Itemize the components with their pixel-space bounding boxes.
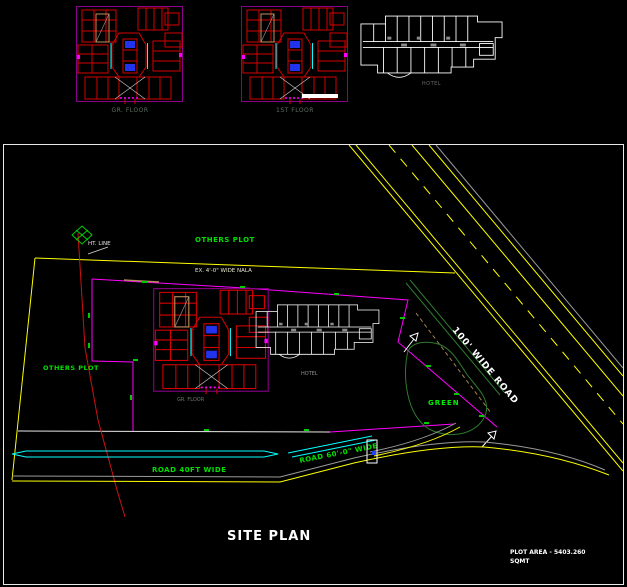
plot-area-line2: SQMT <box>510 558 530 565</box>
flow-arrow-icon <box>404 333 418 352</box>
ht-line-label: HT. LINE <box>88 241 111 247</box>
ht-line-leader <box>88 247 108 254</box>
ht-line <box>78 233 125 517</box>
tower-building-footprint <box>154 289 268 394</box>
first-floor-plan-label: 1ST FLOOR <box>240 107 350 114</box>
entry-arrow-icon <box>482 431 496 447</box>
scale-bar <box>302 94 338 98</box>
tower-footprint-label: GR. FLOOR <box>177 397 205 403</box>
plot-area-line1: PLOT AREA - 5403.260 <box>510 549 585 556</box>
hotel-building-footprint <box>256 305 379 358</box>
diagonal-road <box>349 145 623 471</box>
ground-floor-plan-drawing <box>75 5 185 105</box>
first-floor-plan-drawing <box>240 5 350 105</box>
others-plot-top-label: OTHERS PLOT <box>195 236 255 244</box>
road-bottom-label: ROAD 40FT WIDE <box>152 466 226 474</box>
ground-floor-plan-label: GR. FLOOR <box>75 107 185 114</box>
cad-canvas: GR. FLOOR 1ST FLOOR HOTEL 100' WIDE ROAD <box>0 0 627 587</box>
gate-marker <box>372 451 376 455</box>
hotel-footprint-label: HOTEL <box>301 371 318 377</box>
plot-boundary <box>18 279 497 432</box>
road-diagonal-label: 100' WIDE ROAD <box>450 326 520 407</box>
hotel-plan-drawing <box>358 8 505 82</box>
site-plan-frame: 100' WIDE ROAD <box>3 144 624 585</box>
others-plot-left-label: OTHERS PLOT <box>43 364 99 372</box>
south-boundary-line <box>18 431 330 432</box>
site-plan-title: SITE PLAN <box>227 529 311 544</box>
hotel-plan-label: HOTEL <box>358 81 505 87</box>
site-plan-drawing: 100' WIDE ROAD <box>4 145 623 584</box>
boundary-tick-marks <box>88 281 484 431</box>
nala-label: EX. 4'-0" WIDE NALA <box>195 268 252 274</box>
green-area-label: GREEN <box>428 399 460 407</box>
